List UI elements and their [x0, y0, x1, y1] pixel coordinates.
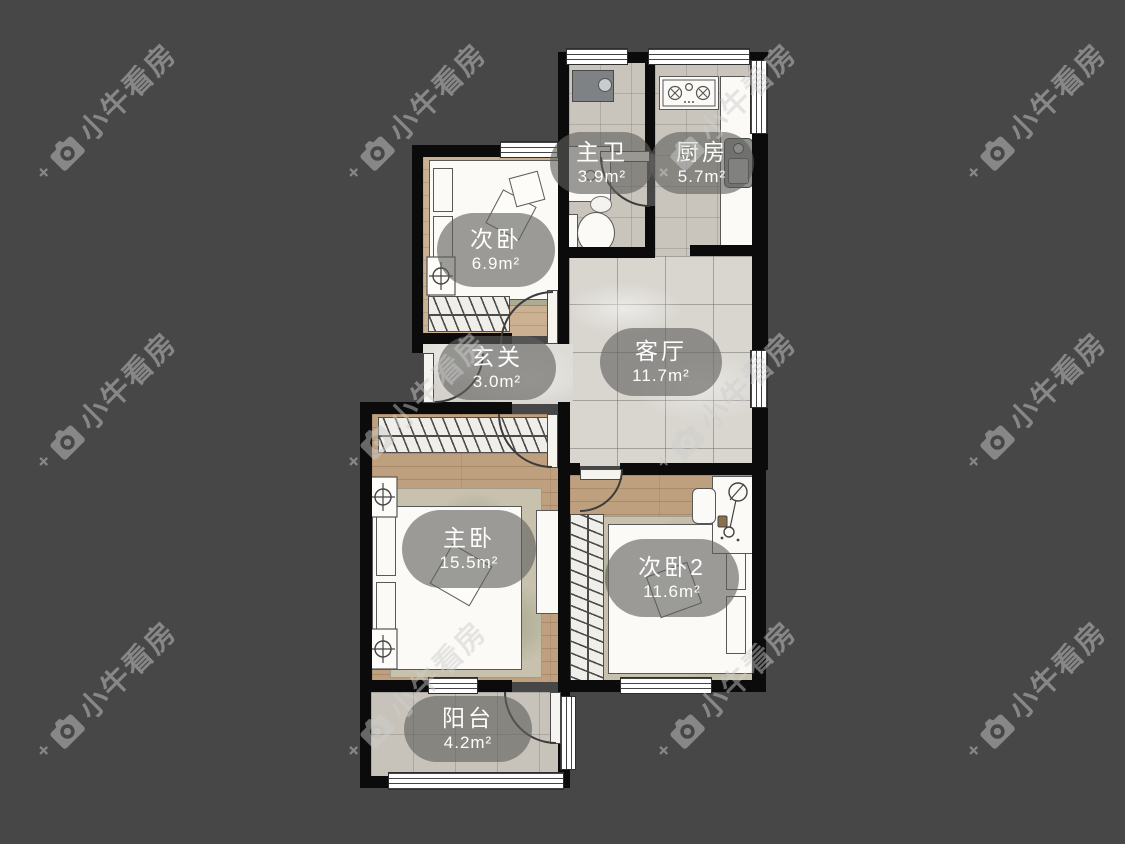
- entry-door-leaf: [423, 353, 434, 403]
- window: [566, 48, 628, 65]
- brand-watermark: +小牛看房: [25, 32, 185, 192]
- room-area: 11.6m²: [643, 582, 701, 602]
- watermark-text: 小牛看房: [67, 610, 184, 727]
- wall: [752, 463, 766, 692]
- zhuwo-ceiling-lamp-icon: [368, 476, 398, 518]
- watermark-text: 小牛看房: [997, 321, 1114, 438]
- sparkle-icon: +: [963, 451, 985, 473]
- watermark-text: 小牛看房: [377, 32, 494, 149]
- room-area: 15.5m²: [440, 553, 499, 573]
- ciwo2-wardrobe: [570, 514, 604, 684]
- room-name: 客厅: [635, 337, 687, 366]
- wall: [360, 402, 512, 414]
- window: [648, 48, 750, 65]
- room-label-zhuwei: 主卫 3.9m²: [550, 132, 654, 194]
- room-name: 玄关: [471, 343, 523, 372]
- zhuwo-ceiling-lamp-icon: [368, 628, 398, 670]
- wall: [360, 402, 372, 692]
- brand-watermark: +小牛看房: [25, 610, 185, 770]
- room-name: 主卫: [576, 138, 628, 167]
- room-name: 次卧: [470, 225, 522, 254]
- room-area: 5.7m²: [678, 167, 726, 187]
- room-area: 3.9m²: [578, 167, 626, 187]
- room-label-ciwo2: 次卧2 11.6m²: [605, 539, 739, 617]
- bath-floor-drain: [590, 196, 612, 213]
- brand-watermark: +小牛看房: [25, 321, 185, 481]
- wall: [558, 247, 655, 258]
- room-name: 阳台: [442, 704, 494, 733]
- room-label-xuanguan: 玄关 3.0m²: [438, 336, 556, 400]
- window: [750, 350, 768, 408]
- sparkle-icon: +: [33, 451, 55, 473]
- room-area: 3.0m²: [473, 372, 521, 392]
- camera-icon: [973, 707, 1018, 752]
- camera-icon: [43, 129, 88, 174]
- window: [560, 696, 576, 770]
- wall: [620, 463, 752, 475]
- camera-icon: [43, 707, 88, 752]
- floorplan-image: 次卧 6.9m² 主卫 3.9m² 厨房 5.7m² 玄关 3.0m² 客厅 1…: [0, 0, 1125, 844]
- sparkle-icon: +: [963, 740, 985, 762]
- camera-icon: [973, 129, 1018, 174]
- sparkle-icon: +: [653, 740, 675, 762]
- window: [428, 677, 478, 694]
- wall: [360, 680, 430, 692]
- camera-icon: [663, 707, 708, 752]
- room-area: 11.7m²: [632, 366, 690, 386]
- wall: [690, 245, 752, 256]
- watermark-text: 小牛看房: [997, 32, 1114, 149]
- sparkle-icon: +: [343, 162, 365, 184]
- zhuwo-pillow: [376, 514, 396, 576]
- room-name: 主卧: [443, 524, 495, 553]
- room-label-zhuwo: 主卧 15.5m²: [402, 510, 536, 588]
- sparkle-icon: +: [33, 162, 55, 184]
- camera-icon: [43, 418, 88, 463]
- room-area: 4.2m²: [444, 733, 492, 753]
- bath-washer-knob: [598, 78, 612, 92]
- brand-watermark: +小牛看房: [955, 321, 1115, 481]
- room-label-keting: 客厅 11.7m²: [600, 328, 722, 396]
- sparkle-icon: +: [963, 162, 985, 184]
- wall: [558, 52, 569, 344]
- wall: [360, 692, 371, 788]
- wall: [476, 680, 512, 692]
- ciwo2-pillow: [726, 596, 746, 654]
- watermark-text: 小牛看房: [67, 321, 184, 438]
- window: [388, 772, 564, 790]
- stove-burners-icon: [662, 79, 716, 107]
- camera-icon: [353, 129, 398, 174]
- ciwo2-chair: [692, 488, 716, 524]
- brand-watermark: +小牛看房: [955, 610, 1115, 770]
- window: [500, 141, 558, 158]
- ciwo2-desk-lamp-icon: [716, 480, 752, 550]
- ciwo-pillow: [433, 168, 453, 212]
- wall: [412, 145, 423, 353]
- window: [750, 60, 768, 134]
- room-area: 6.9m²: [472, 254, 520, 274]
- room-label-ciwo: 次卧 6.9m²: [437, 213, 555, 287]
- watermark-text: 小牛看房: [67, 32, 184, 149]
- wall: [570, 463, 580, 475]
- room-name: 次卧2: [638, 553, 706, 582]
- room-label-yangtai: 阳台 4.2m²: [404, 696, 532, 762]
- ciwo-wardrobe: [428, 296, 510, 332]
- brand-watermark: +小牛看房: [955, 32, 1115, 192]
- sparkle-icon: +: [33, 740, 55, 762]
- watermark-text: 小牛看房: [997, 610, 1114, 727]
- wall: [558, 414, 570, 692]
- camera-icon: [973, 418, 1018, 463]
- room-name: 厨房: [676, 138, 728, 167]
- room-label-chufang: 厨房 5.7m²: [650, 132, 754, 194]
- window: [620, 677, 712, 694]
- wall: [645, 62, 655, 154]
